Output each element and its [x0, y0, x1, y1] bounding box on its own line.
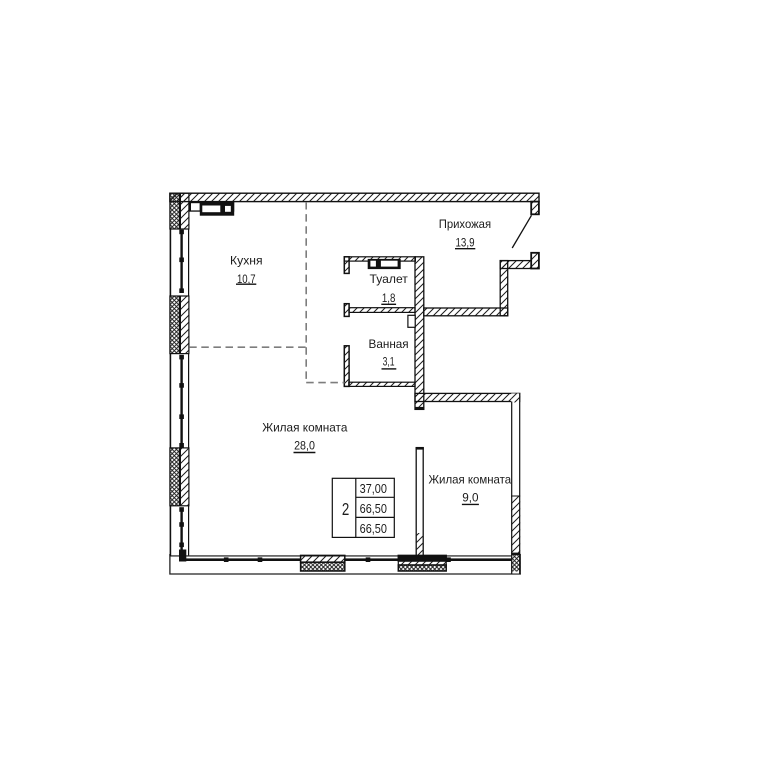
svg-text:3,1: 3,1: [383, 354, 395, 368]
svg-text:Жилая комната: Жилая комната: [262, 421, 348, 435]
svg-text:13,9: 13,9: [456, 235, 475, 249]
svg-text:1,8: 1,8: [382, 291, 396, 305]
svg-text:Ванная: Ванная: [369, 337, 409, 351]
svg-text:Кухня: Кухня: [230, 253, 263, 267]
svg-text:28,0: 28,0: [294, 439, 315, 453]
svg-text:Жилая комната: Жилая комната: [429, 472, 512, 486]
svg-text:Прихожая: Прихожая: [439, 217, 491, 231]
svg-text:66,50: 66,50: [360, 521, 387, 536]
svg-text:Туалет: Туалет: [370, 272, 409, 286]
svg-text:9,0: 9,0: [462, 491, 479, 505]
svg-text:2: 2: [342, 499, 349, 519]
svg-text:37,00: 37,00: [360, 481, 387, 496]
svg-text:66,50: 66,50: [360, 501, 387, 516]
